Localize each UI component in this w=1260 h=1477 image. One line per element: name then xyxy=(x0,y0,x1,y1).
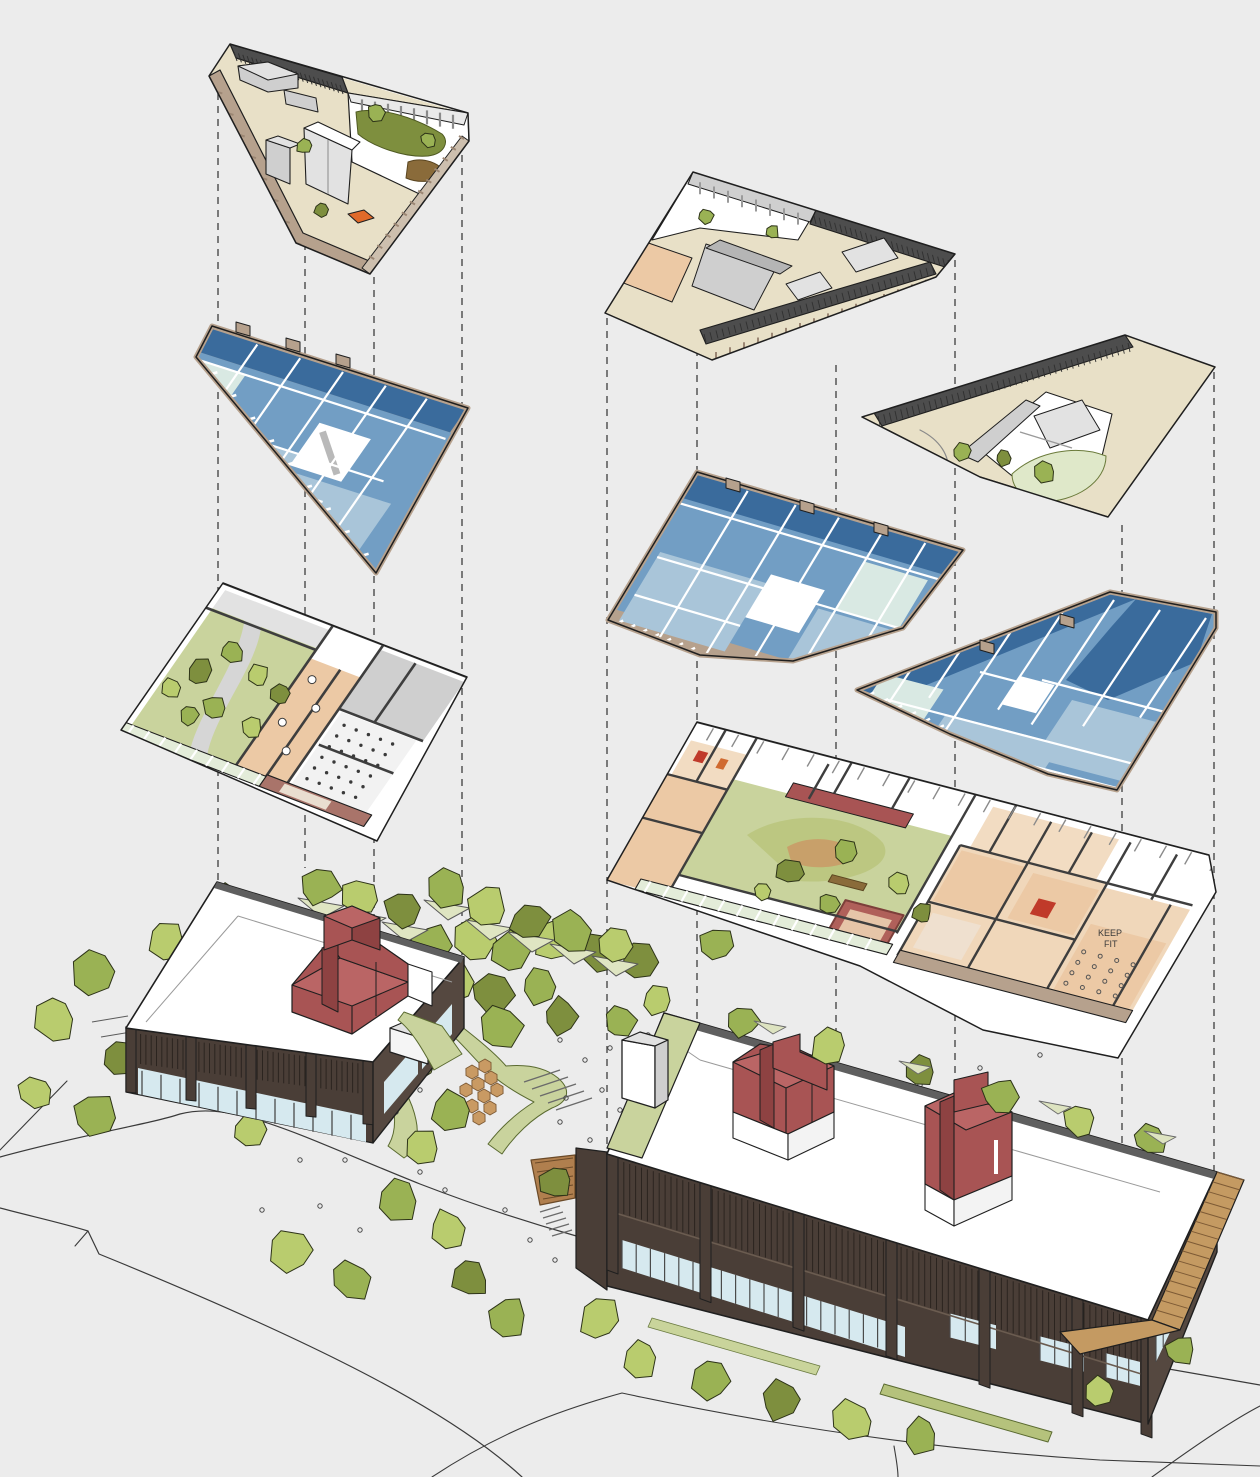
svg-text:KEEP: KEEP xyxy=(1098,928,1122,938)
svg-text:FIT: FIT xyxy=(1104,939,1118,949)
